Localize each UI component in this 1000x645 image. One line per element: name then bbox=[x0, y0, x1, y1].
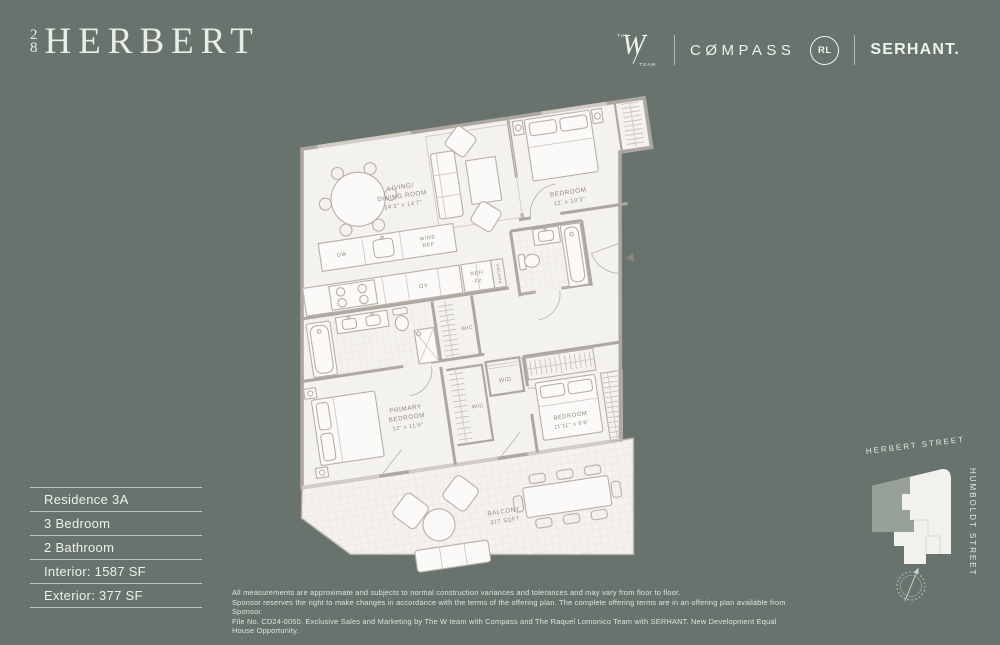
partner-logos: THE W TEAM CØMPASS RL SERHANT. bbox=[615, 30, 960, 70]
herbert-street-label: HERBERT STREET bbox=[865, 435, 965, 456]
logo-divider bbox=[854, 35, 855, 65]
info-residence: Residence 3A bbox=[30, 488, 202, 512]
serhant-logo: SERHANT. bbox=[870, 41, 960, 59]
info-exterior-sf: Exterior: 377 SF bbox=[30, 584, 202, 608]
residence-info-panel: Residence 3A 3 Bedroom 2 Bathroom Interi… bbox=[30, 487, 202, 608]
humboldt-street-label: HUMBOLDT STREET bbox=[968, 468, 977, 577]
building-logo: 2 8 HERBERT bbox=[30, 22, 260, 62]
compass-logo: CØMPASS bbox=[690, 42, 795, 59]
w-team-letter: W bbox=[622, 30, 645, 62]
logo-number: 2 8 bbox=[30, 29, 38, 55]
info-interior-sf: Interior: 1587 SF bbox=[30, 560, 202, 584]
info-bedrooms: 3 Bedroom bbox=[30, 512, 202, 536]
logo-divider bbox=[674, 35, 675, 65]
info-bathrooms: 2 Bathroom bbox=[30, 536, 202, 560]
flyer-page: 2 8 HERBERT THE W TEAM CØMPASS RL SERHAN… bbox=[0, 0, 1000, 645]
compass-rose-icon bbox=[888, 560, 934, 616]
ref-fz-label-2: FZ bbox=[474, 278, 482, 285]
floor-plan: LIVING/ DINING ROOM 24'3" x 14'7" BEDROO… bbox=[253, 70, 683, 585]
rl-monogram-logo: RL bbox=[810, 36, 839, 65]
legal-disclaimer: All measurements are approximate and sub… bbox=[232, 588, 792, 636]
logo-name: HERBERT bbox=[45, 22, 260, 62]
site-map bbox=[864, 456, 968, 566]
bathroom-2 bbox=[513, 223, 589, 294]
disclaimer-line-2: Sponsor reserves the right to make chang… bbox=[232, 598, 792, 617]
entry-arrow-icon bbox=[625, 253, 634, 263]
disclaimer-line-3: File No. CD24-0050. Exclusive Sales and … bbox=[232, 617, 792, 636]
logo-digit-8: 8 bbox=[30, 42, 38, 55]
disclaimer-line-1: All measurements are approximate and sub… bbox=[232, 588, 792, 598]
w-team-team: TEAM bbox=[639, 62, 656, 67]
w-team-logo: THE W TEAM bbox=[615, 30, 659, 70]
